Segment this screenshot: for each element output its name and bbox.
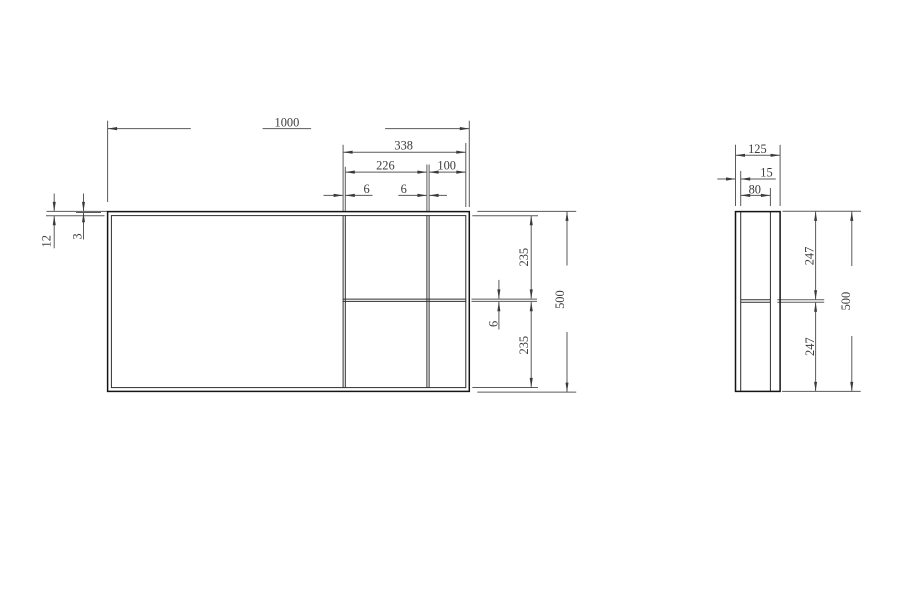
svg-text:500: 500 (839, 292, 853, 311)
svg-text:247: 247 (802, 247, 816, 266)
svg-text:500: 500 (553, 290, 567, 309)
svg-text:100: 100 (437, 158, 456, 172)
svg-text:6: 6 (486, 321, 500, 327)
svg-text:12: 12 (40, 235, 54, 247)
svg-text:235: 235 (517, 336, 531, 355)
svg-text:226: 226 (376, 158, 395, 172)
svg-text:1000: 1000 (275, 115, 300, 129)
svg-text:247: 247 (803, 337, 817, 356)
svg-text:6: 6 (363, 182, 369, 196)
svg-text:15: 15 (760, 165, 772, 179)
svg-text:3: 3 (70, 233, 84, 239)
svg-text:80: 80 (749, 183, 761, 197)
svg-text:235: 235 (517, 248, 531, 267)
svg-text:125: 125 (748, 142, 767, 156)
svg-text:338: 338 (394, 139, 413, 153)
svg-text:6: 6 (401, 182, 407, 196)
